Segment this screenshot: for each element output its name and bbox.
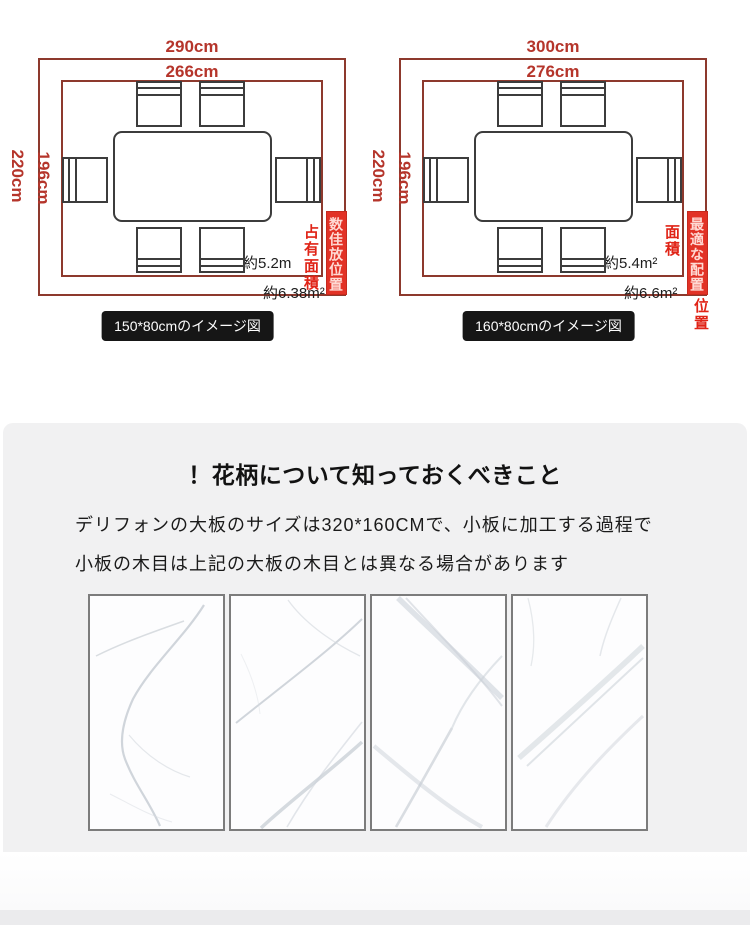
marble-slab-images bbox=[88, 594, 648, 831]
chair-backrest bbox=[498, 87, 542, 96]
pattern-info-panel: ！花柄について知っておくべきこと デリフォンの大板のサイズは320*160CMで… bbox=[3, 423, 747, 852]
outer-height-label: 220cm bbox=[370, 136, 386, 216]
chair-top-right bbox=[199, 81, 245, 127]
chair-top-right bbox=[560, 81, 606, 127]
dining-table bbox=[474, 131, 633, 222]
dining-table bbox=[113, 131, 272, 222]
chair-bottom-left bbox=[136, 227, 182, 273]
chair-backrest bbox=[137, 87, 181, 96]
next-section-edge bbox=[0, 910, 750, 925]
chair-bottom-left bbox=[497, 227, 543, 273]
inner-width-label: 266cm bbox=[61, 62, 323, 82]
chair-backrest bbox=[667, 158, 676, 202]
table-area-value: 約5.2m bbox=[243, 252, 291, 273]
floorplan-160x80: 300cm 276cm 220cm 196cm 約5.4m² 約6.6m² 面積… bbox=[361, 0, 736, 352]
size-caption: 150*80cmのイメージ図 bbox=[101, 311, 274, 341]
chair-backrest bbox=[200, 87, 244, 96]
marble-tile-2 bbox=[229, 594, 366, 831]
table-area-value: 約5.4m² bbox=[604, 252, 657, 273]
area-label: 面積 bbox=[661, 224, 682, 258]
pattern-info-line1: デリフォンの大板のサイズは320*160CMで、小板に加工する過程で bbox=[75, 511, 653, 537]
placement-banner-extra: 位置 bbox=[690, 298, 711, 332]
chair-bottom-right bbox=[560, 227, 606, 273]
section-gap bbox=[0, 852, 750, 910]
chair-right bbox=[275, 157, 321, 203]
placement-banner: 最適な配置 bbox=[687, 211, 708, 295]
inner-height-label: 196cm bbox=[35, 138, 51, 218]
chair-backrest bbox=[137, 258, 181, 267]
chair-top-left bbox=[497, 81, 543, 127]
inner-height-label: 196cm bbox=[396, 138, 412, 218]
pattern-info-line2: 小板の木目は上記の大板の木目とは異なる場合があります bbox=[75, 550, 569, 576]
placement-banner: 数佳放位置 bbox=[326, 211, 347, 295]
inner-width-label: 276cm bbox=[422, 62, 684, 82]
size-caption: 160*80cmのイメージ図 bbox=[462, 311, 635, 341]
floorplan-150x80: 290cm 266cm 220cm 196cm 約5.2m 約6.38m² 占有… bbox=[0, 0, 375, 352]
chair-backrest bbox=[306, 158, 315, 202]
area-label: 占有面積 bbox=[300, 224, 321, 292]
chair-backrest bbox=[498, 258, 542, 267]
chair-backrest bbox=[68, 158, 77, 202]
chair-left bbox=[62, 157, 108, 203]
outer-width-label: 300cm bbox=[399, 37, 707, 57]
marble-tile-4 bbox=[511, 594, 648, 831]
chair-backrest bbox=[561, 87, 605, 96]
layout-area-value: 約6.6m² bbox=[624, 282, 677, 303]
pattern-info-title: ！花柄について知っておくべきこと bbox=[3, 456, 747, 490]
chair-right bbox=[636, 157, 682, 203]
chair-bottom-right bbox=[199, 227, 245, 273]
chair-left bbox=[423, 157, 469, 203]
chair-backrest bbox=[429, 158, 438, 202]
chair-backrest bbox=[561, 258, 605, 267]
outer-width-label: 290cm bbox=[38, 37, 346, 57]
chair-backrest bbox=[200, 258, 244, 267]
outer-height-label: 220cm bbox=[9, 136, 25, 216]
marble-tile-3 bbox=[370, 594, 507, 831]
product-detail-page: 290cm 266cm 220cm 196cm 約5.2m 約6.38m² 占有… bbox=[0, 0, 750, 925]
marble-tile-1 bbox=[88, 594, 225, 831]
chair-top-left bbox=[136, 81, 182, 127]
